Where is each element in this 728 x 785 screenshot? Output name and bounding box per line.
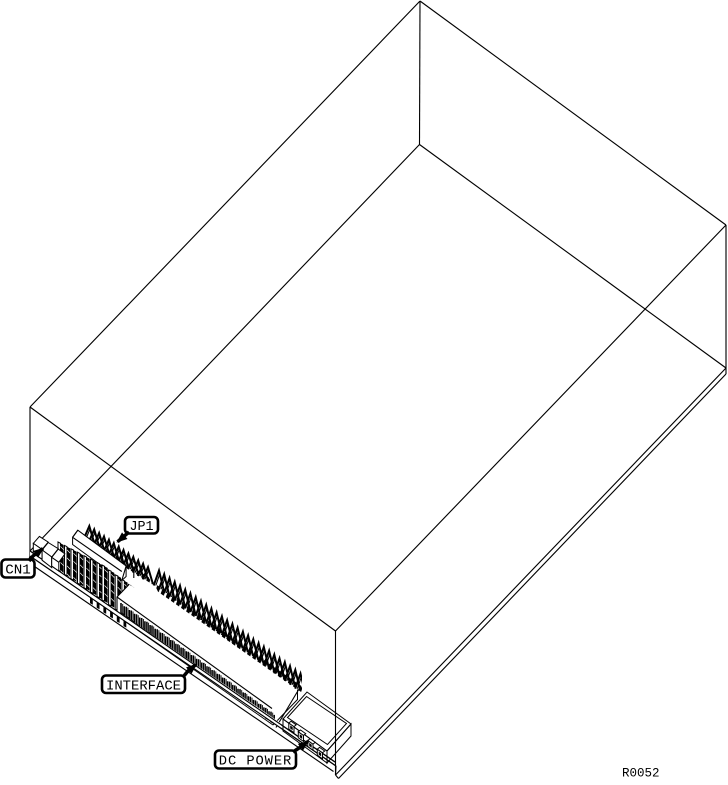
svg-text:CN1: CN1 [5, 563, 31, 579]
svg-text:INTERFACE: INTERFACE [106, 678, 181, 694]
svg-text:JP1: JP1 [129, 520, 153, 535]
svg-text:R0052: R0052 [622, 767, 660, 781]
svg-text:DC POWER: DC POWER [219, 755, 292, 770]
